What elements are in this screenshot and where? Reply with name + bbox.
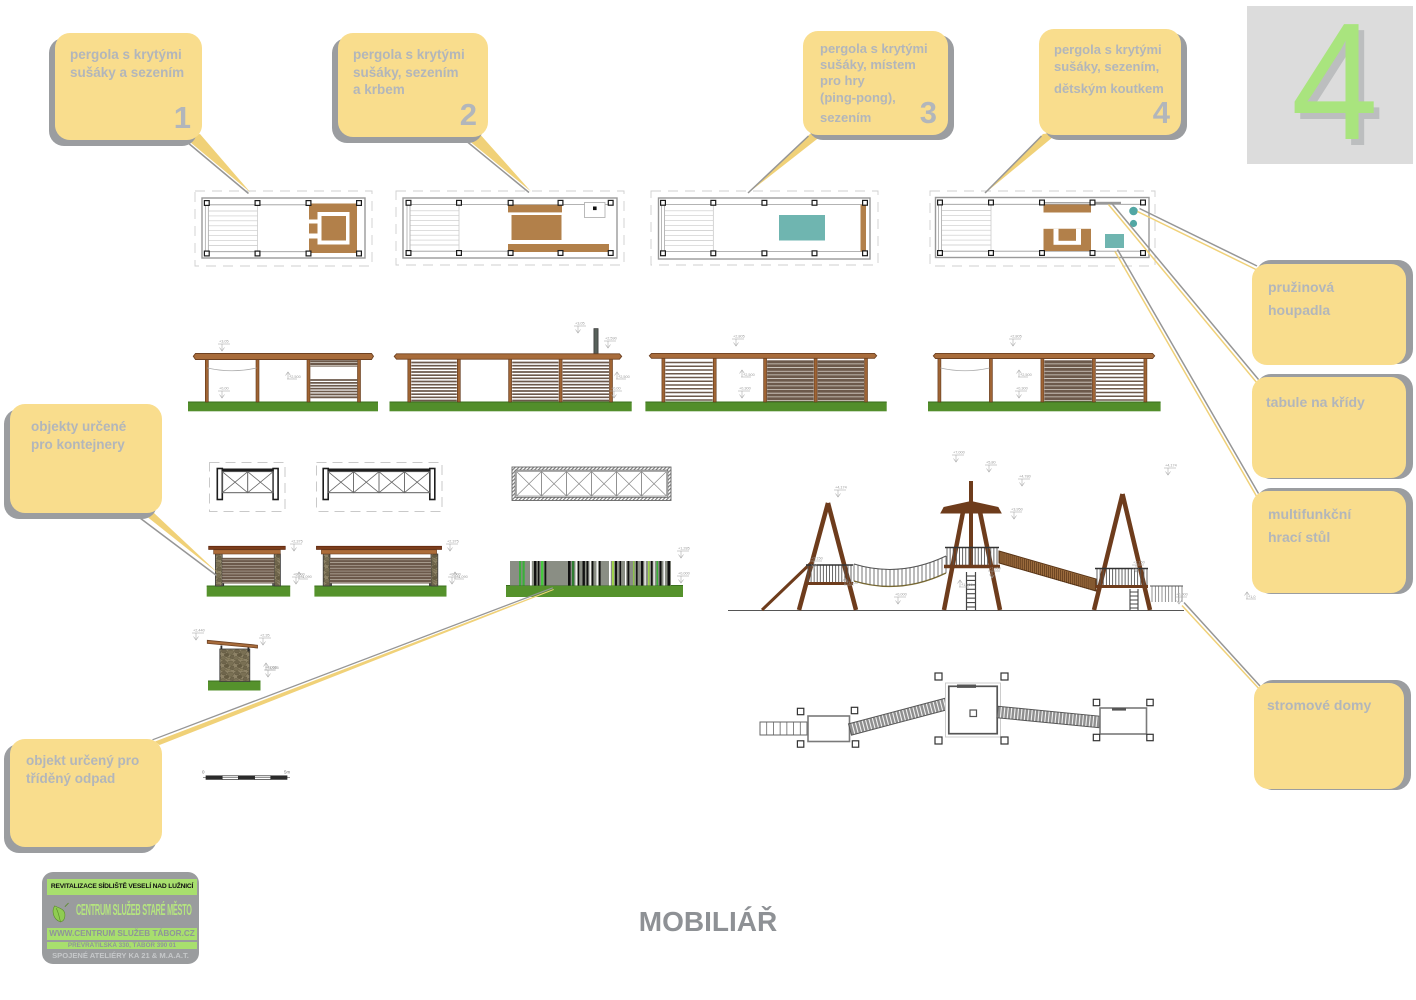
svg-text:+2,500: +2,500 [618,375,630,379]
svg-text:+2,500: +2,500 [743,373,755,377]
svg-text:+1,0: +1,0 [1248,595,1256,599]
svg-text:+0,000: +0,000 [449,573,461,577]
svg-text:+1,285: +1,285 [678,547,690,551]
svg-text:+2,440: +2,440 [193,629,205,633]
svg-text:+4,174: +4,174 [1165,464,1177,468]
svg-text:+0,300: +0,300 [739,387,751,391]
svg-text:+0,300: +0,300 [1016,387,1028,391]
svg-text:+0,000: +0,000 [1176,593,1188,597]
svg-text:+3,05: +3,05 [575,322,585,326]
svg-text:+4,174: +4,174 [835,486,847,490]
svg-text:+2,150: +2,150 [1133,561,1145,565]
svg-text:+1,900: +1,900 [961,583,973,587]
svg-text:+0,00: +0,00 [611,387,621,391]
svg-text:+0,000: +0,000 [678,572,690,576]
svg-text:5m: 5m [284,770,291,775]
svg-text:+5,80: +5,80 [986,461,996,465]
svg-text:+3,950: +3,950 [1011,508,1023,512]
svg-text:+0,000: +0,000 [293,573,305,577]
svg-text:+2,35: +2,35 [260,634,270,638]
svg-text:+0,00: +0,00 [219,387,229,391]
svg-text:+4,780: +4,780 [1019,475,1031,479]
svg-text:+2,805: +2,805 [1010,335,1022,339]
svg-text:+2,590: +2,590 [605,337,617,341]
svg-text:+2,375: +2,375 [291,540,303,544]
svg-text:+2,500: +2,500 [1020,373,1032,377]
svg-text:0: 0 [202,770,205,775]
svg-text:+1,950: +1,950 [989,567,1001,571]
svg-text:+2,805: +2,805 [733,335,745,339]
svg-text:+2,150: +2,150 [811,557,823,561]
svg-text:+2,500: +2,500 [289,375,301,379]
svg-text:+0,000: +0,000 [895,593,907,597]
svg-text:+7,000: +7,000 [953,451,965,455]
svg-text:+3,05: +3,05 [219,340,229,344]
svg-text:+0,000: +0,000 [265,666,277,670]
svg-text:+2,375: +2,375 [447,540,459,544]
